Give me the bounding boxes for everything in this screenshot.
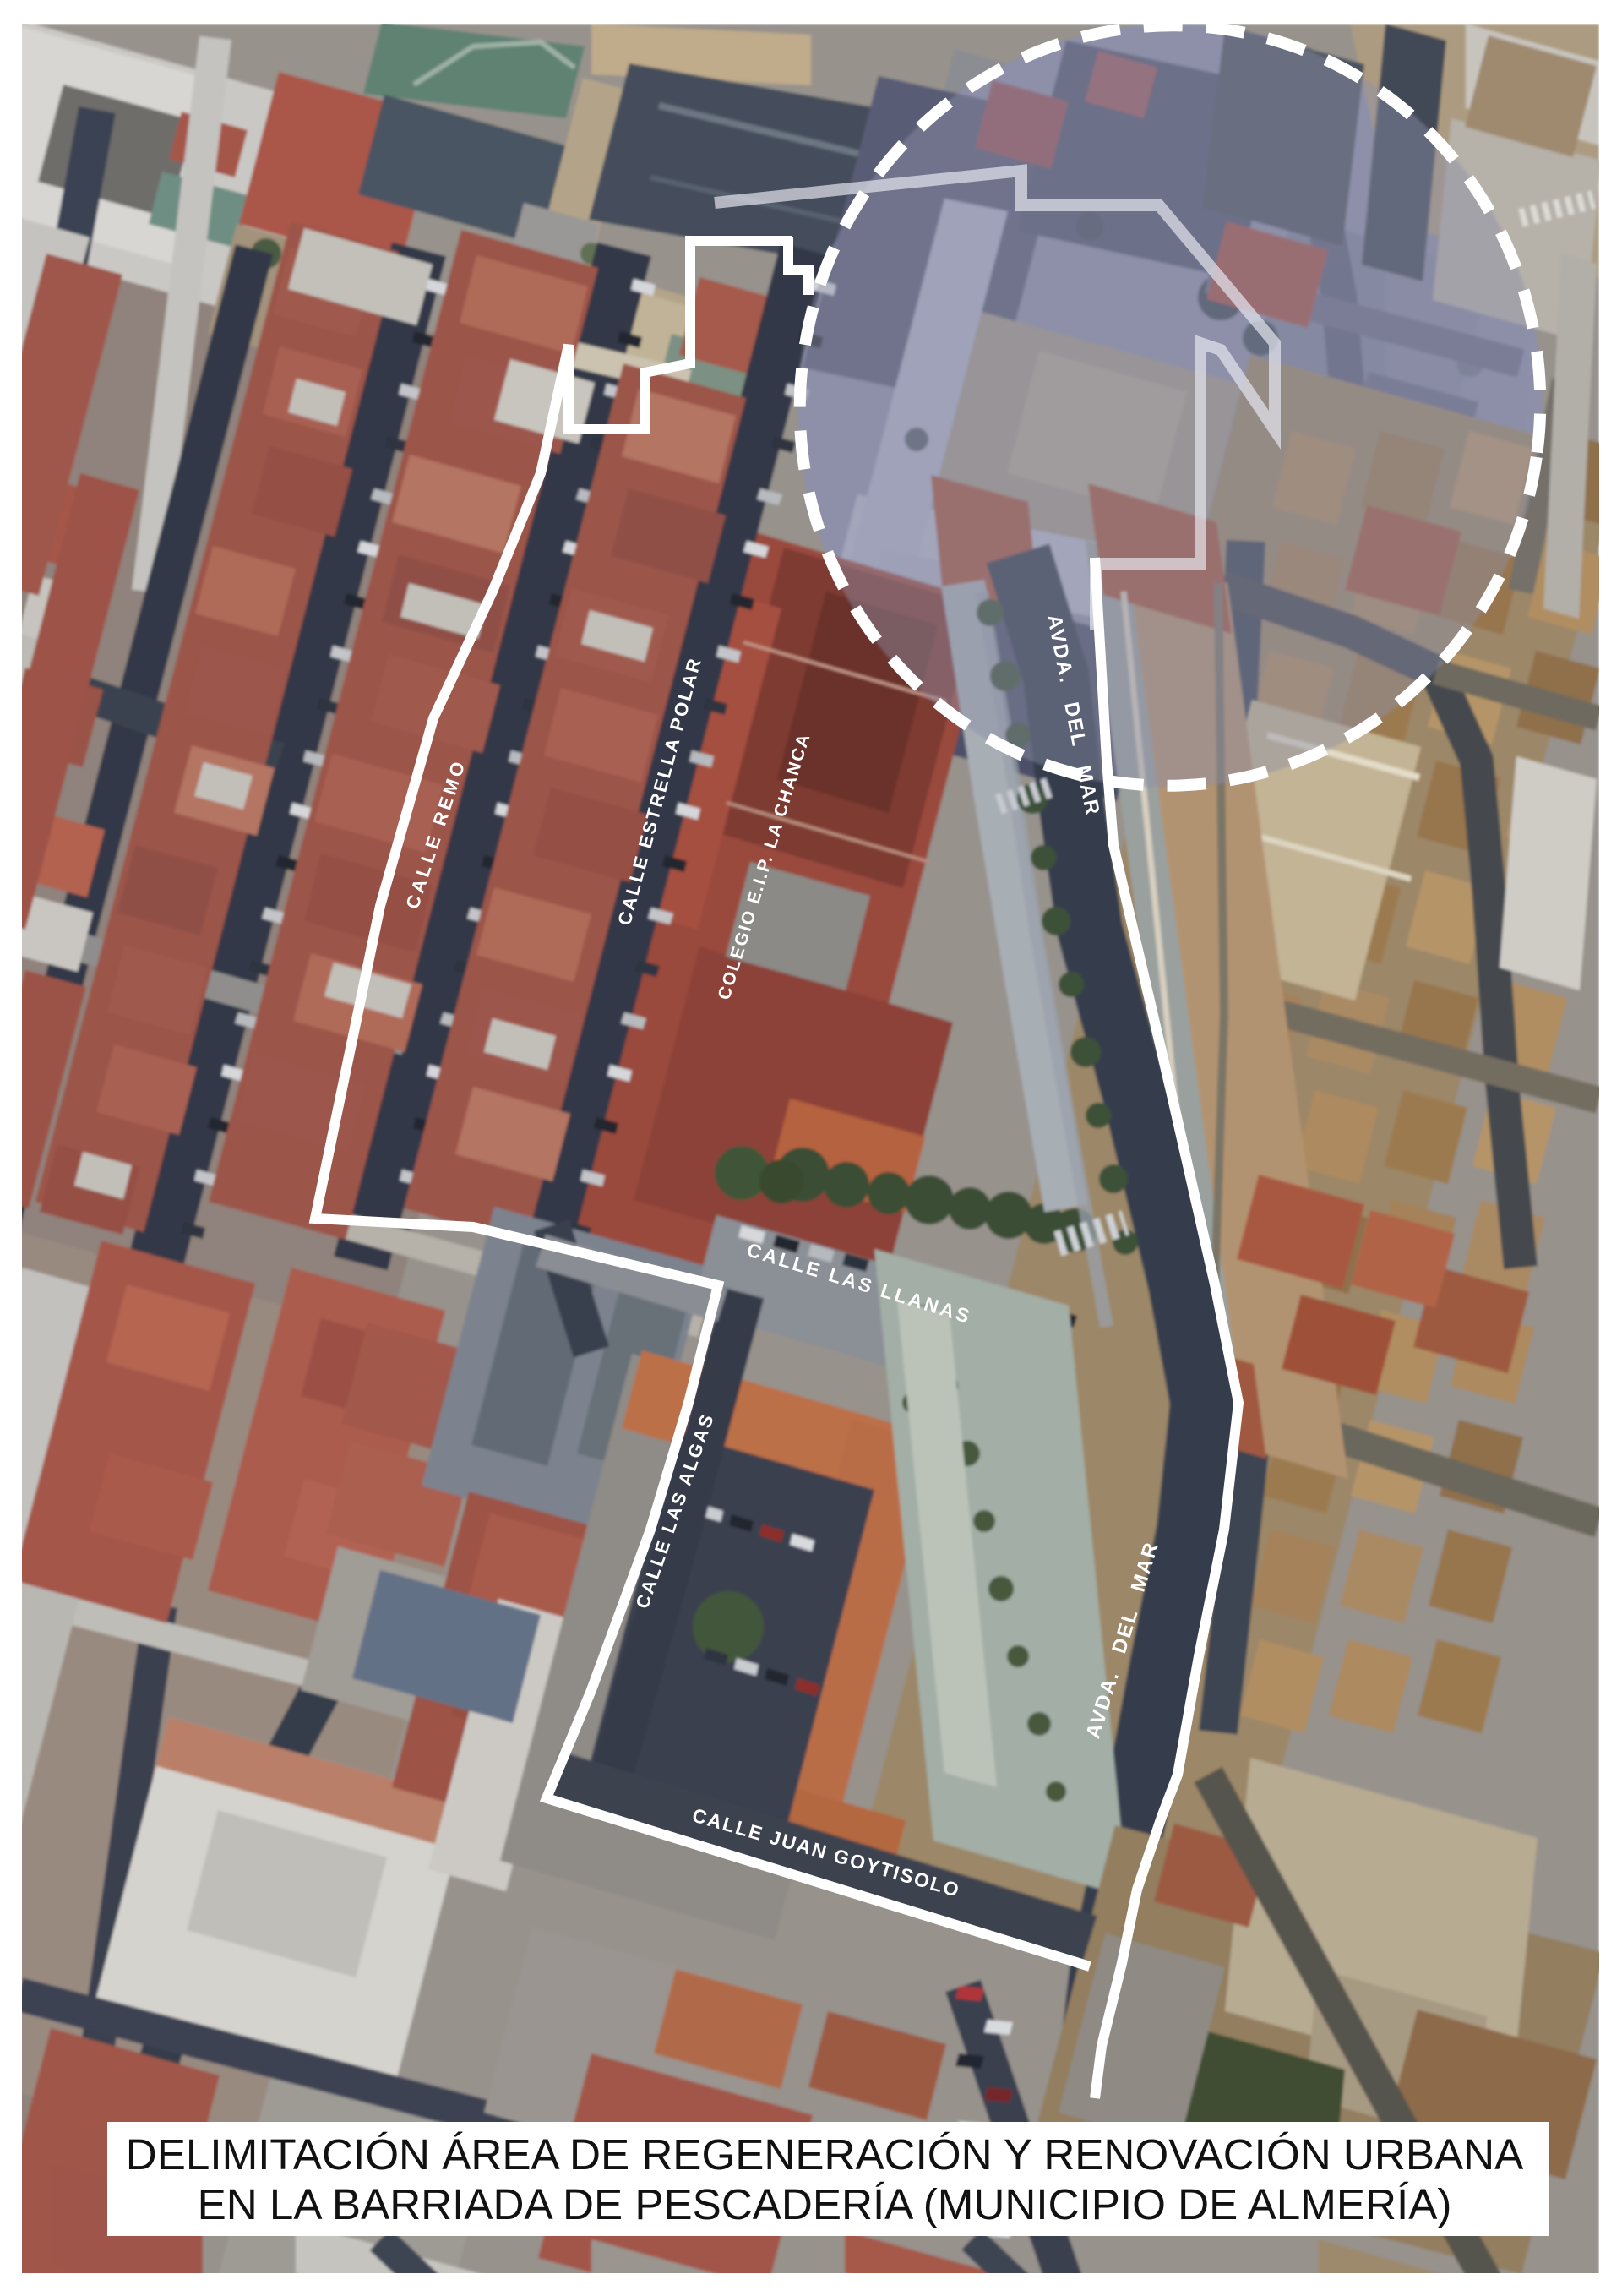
svg-text:DELIMITACIÓN ÁREA DE REGENERAC: DELIMITACIÓN ÁREA DE REGENERACIÓN Y RENO… [126,2130,1524,2179]
svg-text:EN LA BARRIADA DE PESCADERÍA (: EN LA BARRIADA DE PESCADERÍA (MUNICIPIO … [198,2180,1452,2228]
